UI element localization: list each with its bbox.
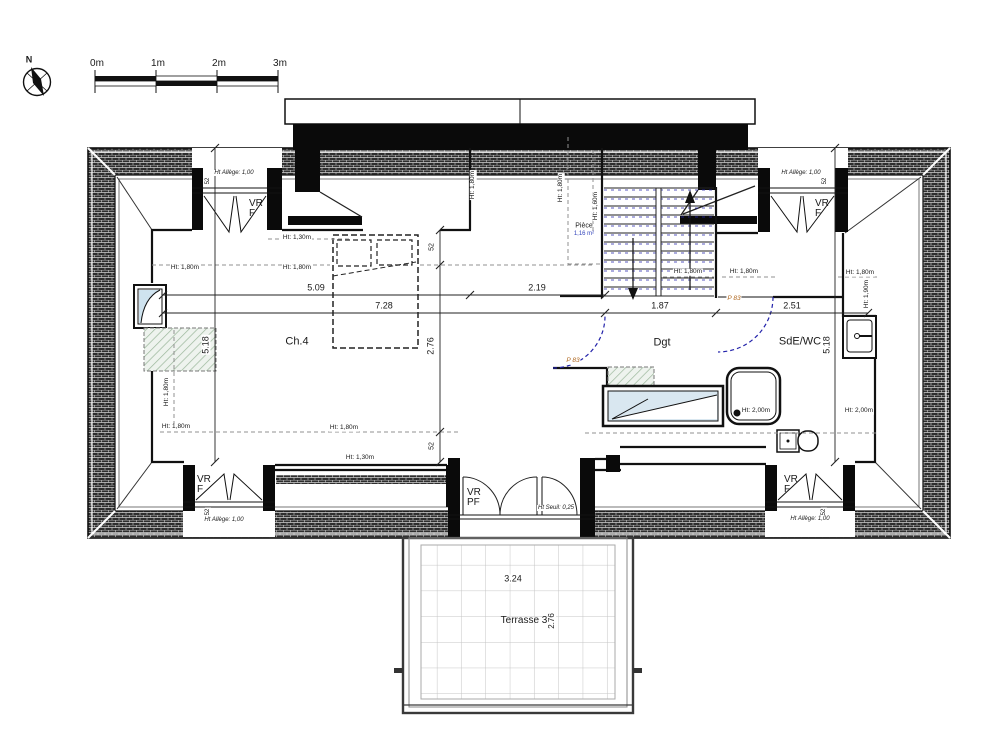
floor-plan-drawing xyxy=(0,0,996,744)
dim-251: 2.51 xyxy=(782,302,802,311)
height-180-left-v: Ht: 1,80m xyxy=(164,377,171,407)
shower xyxy=(727,368,780,424)
dim-52-bottom: 52 xyxy=(429,441,436,451)
seuil-label: Ht Seuil: 0,25 xyxy=(537,505,575,511)
dim-52-win-tr: 52 xyxy=(822,177,828,186)
dim-219: 2.19 xyxy=(527,284,547,293)
door-label-p83-dgt: P 83 xyxy=(565,358,580,365)
window-label-vrf-br: VR F xyxy=(784,475,798,495)
height-180-center-v2: Ht: 1,80m xyxy=(558,173,565,203)
allege-label-bl: Ht Allège: 1,00 xyxy=(203,517,244,523)
dim-276-terrace: 2.76 xyxy=(548,612,556,630)
scale-tick-0: 0m xyxy=(89,59,105,69)
height-180-dgt: Ht: 1,80m xyxy=(729,269,759,276)
height-130-bottom: Ht: 1,30m xyxy=(345,455,375,462)
door-swing-sde xyxy=(718,297,773,352)
dim-52-top: 52 xyxy=(429,242,436,252)
dim-324-terrace: 3.24 xyxy=(503,575,523,584)
window-label-vrf-tr: VR F xyxy=(815,199,829,219)
wall-hatch-strip xyxy=(276,475,446,484)
door-label-p83-sde: P 83 xyxy=(726,296,741,303)
height-180-top: Ht: 1,80m xyxy=(282,265,312,272)
bed xyxy=(333,235,418,348)
north-label: N xyxy=(25,56,34,65)
room-area-piece: 1,16 m² xyxy=(573,231,595,237)
height-180-bl: Ht: 1,80m xyxy=(161,424,191,431)
dim-52-win-tl: 52 xyxy=(205,177,211,186)
allege-label-tl: Ht Allège: 1,00 xyxy=(213,170,254,176)
room-label-piece: Pièce xyxy=(574,223,594,230)
height-190-sde: Ht: 1,90m xyxy=(864,279,871,309)
height-180-bottom: Ht: 1,80m xyxy=(329,425,359,432)
north-arrow-icon xyxy=(24,67,51,96)
room-label-ch4: Ch.4 xyxy=(285,337,308,348)
window-label-vrf-tl: VR F xyxy=(249,199,263,219)
scale-tick-1: 1m xyxy=(150,59,166,69)
bathtub xyxy=(603,386,723,426)
allege-label-tr: Ht Allège: 1,00 xyxy=(780,170,821,176)
floor-plan-page: N 0m 1m 2m 3m Ch.4 Dgt SdE/WC Pièce 1,16… xyxy=(0,0,996,744)
door-label-vrpf: VR PF xyxy=(467,488,481,508)
room-label-dgt: Dgt xyxy=(653,338,670,349)
dim-276-mid: 2.76 xyxy=(427,336,436,356)
window-label-vrf-bl: VR F xyxy=(197,475,211,495)
dim-187: 1.87 xyxy=(650,302,670,311)
dim-518-right: 5.18 xyxy=(823,335,832,355)
dim-728: 7.28 xyxy=(374,302,394,311)
height-180-tl: Ht: 1,80m xyxy=(170,265,200,272)
allege-label-br: Ht Allège: 1,00 xyxy=(789,516,830,522)
stairs xyxy=(604,188,714,300)
height-180-sde: Ht: 1,80m xyxy=(845,270,875,277)
height-180-stair: Ht: 1,80m xyxy=(673,269,703,276)
scale-tick-2: 2m xyxy=(211,59,227,69)
height-200-sde: Ht: 2,00m xyxy=(844,408,874,415)
scale-bar xyxy=(95,70,278,93)
height-130-top: Ht: 1,30m xyxy=(282,235,312,242)
velux-window xyxy=(132,283,168,330)
scale-tick-3: 3m xyxy=(272,59,288,69)
dim-518-left: 5.18 xyxy=(202,335,211,355)
height-180-center-v1: Ht: 1,80m xyxy=(470,170,477,200)
dim-52-win-bl: 52 xyxy=(205,508,211,517)
room-label-sdewc: SdE/WC xyxy=(779,337,821,348)
dim-509: 5.09 xyxy=(306,284,326,293)
room-label-terrace: Terrasse 3 xyxy=(500,616,549,626)
height-200-shower: Ht: 2,00m xyxy=(741,408,771,415)
height-160-piece: Ht: 1,60m xyxy=(593,191,600,221)
sink xyxy=(843,316,876,358)
